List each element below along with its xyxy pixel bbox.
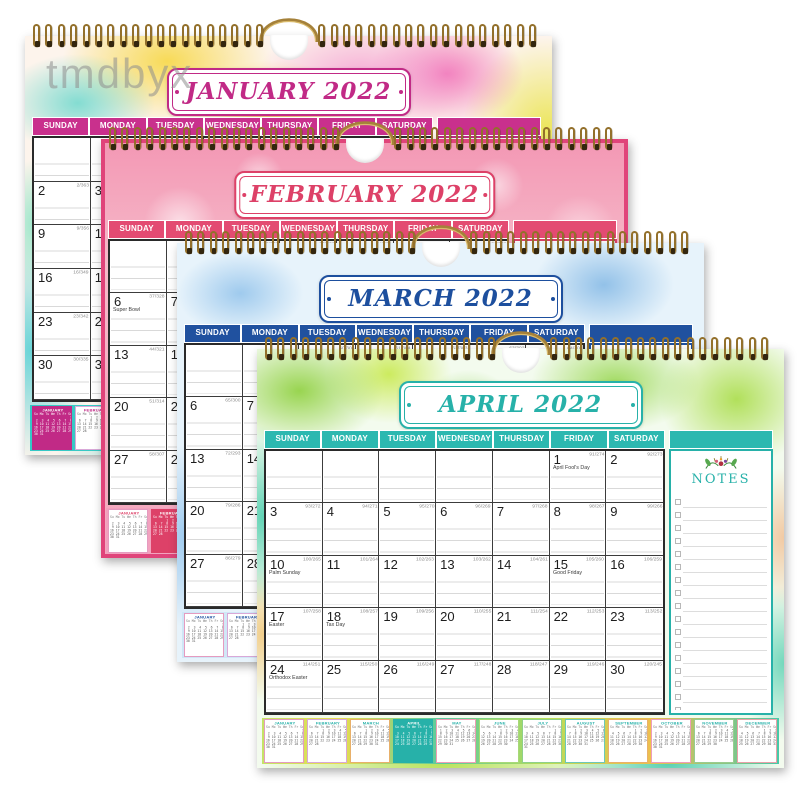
binding-loop xyxy=(619,231,626,254)
binding-loop xyxy=(529,24,536,47)
spiral-binding xyxy=(257,336,784,368)
day-cell: 15105/260Good Friday xyxy=(550,556,607,608)
binding-loop xyxy=(120,24,127,47)
calendar-title: APRIL 2022 xyxy=(415,383,627,427)
binding-loop xyxy=(171,127,178,150)
day-cell: 1372/293 xyxy=(186,450,243,502)
day-cell: 11101/264 xyxy=(323,556,380,608)
binding-loop xyxy=(283,127,290,150)
day-header: TUESDAY xyxy=(380,431,435,448)
mini-calendar-january: JANUARYSu Mo Tu We Th Fr Sa 1 2 3 4 5 6 … xyxy=(108,509,148,553)
binding-loop xyxy=(625,337,632,360)
binding-loop xyxy=(295,127,302,150)
binding-loop xyxy=(439,337,446,360)
day-cell xyxy=(110,241,167,293)
binding-loop xyxy=(517,24,524,47)
mini-calendar-august: AUGUSTSu Mo Tu We Th Fr Sa 1 2 3 4 5 6 7… xyxy=(565,719,605,763)
day-header: MONDAY xyxy=(322,431,377,448)
day-cell: 18108/257Tax Day xyxy=(323,608,380,660)
weekday-header-row: SUNDAYMONDAYTUESDAYWEDNESDAYTHURSDAYFRID… xyxy=(264,430,665,449)
binding-loop xyxy=(95,24,102,47)
day-header: SATURDAY xyxy=(609,431,664,448)
mini-calendar-may: MAYSu Mo Tu We Th Fr Sa 1 2 3 4 5 6 7 8 … xyxy=(436,719,476,763)
binding-loop xyxy=(259,231,266,254)
binding-loop xyxy=(649,337,656,360)
product-image: tmdbyx JANUARY 2022 SUNDAYMONDAYTUESDAYW… xyxy=(0,0,800,800)
binding-loop xyxy=(456,127,463,150)
day-cell: 17107/258Easter xyxy=(266,608,323,660)
binding-loop xyxy=(169,24,176,47)
note-line xyxy=(683,508,767,521)
binding-loop xyxy=(145,24,152,47)
title-plate: JANUARY 2022 xyxy=(167,68,411,116)
binding-loop xyxy=(470,231,477,254)
binding-loop xyxy=(396,231,403,254)
binding-loop xyxy=(504,24,511,47)
day-cell: 22112/253 xyxy=(550,608,607,660)
binding-loop xyxy=(587,337,594,360)
binding-loop xyxy=(442,24,449,47)
binding-loop xyxy=(394,127,401,150)
binding-loop xyxy=(605,127,612,150)
day-cell: 1616/349 xyxy=(34,269,91,313)
note-line xyxy=(683,521,767,534)
binding-loop xyxy=(631,231,638,254)
day-cell: 30120/245 xyxy=(606,661,663,713)
binding-loop xyxy=(327,337,334,360)
binding-loop xyxy=(258,127,265,150)
binding-loop xyxy=(371,231,378,254)
day-cell: 595/270 xyxy=(379,503,436,555)
binding-loop xyxy=(493,127,500,150)
binding-loop xyxy=(444,127,451,150)
day-cell: 3030/335 xyxy=(34,356,91,400)
binding-loop xyxy=(426,337,433,360)
month-grid: 191/274April Fool's Day292/273393/272494… xyxy=(264,449,665,715)
binding-loop xyxy=(352,337,359,360)
binding-loop xyxy=(208,127,215,150)
day-cell: 696/269 xyxy=(436,503,493,555)
binding-loop xyxy=(70,24,77,47)
day-header: SUNDAY xyxy=(265,431,320,448)
binding-loop xyxy=(405,24,412,47)
binding-loop xyxy=(197,231,204,254)
binding-loop xyxy=(593,127,600,150)
day-cell: 898/267 xyxy=(550,503,607,555)
day-cell: 25115/250 xyxy=(323,661,380,713)
binding-loop xyxy=(463,337,470,360)
binding-loop xyxy=(582,231,589,254)
note-line xyxy=(683,495,767,508)
binding-loop xyxy=(245,127,252,150)
binding-loop xyxy=(518,127,525,150)
binding-loop xyxy=(761,337,768,360)
binding-loop xyxy=(483,231,490,254)
mini-calendar-july: JULYSu Mo Tu We Th Fr Sa 1 2 3 4 5 6 7 8… xyxy=(522,719,562,763)
day-cell: 12102/263 xyxy=(379,556,436,608)
binding-loop xyxy=(545,231,552,254)
binding-loop xyxy=(244,24,251,47)
binding-loop xyxy=(532,231,539,254)
binding-loop xyxy=(724,337,731,360)
binding-loop xyxy=(431,127,438,150)
binding-loop xyxy=(419,127,426,150)
binding-loop xyxy=(315,337,322,360)
title-plate: FEBRUARY 2022 xyxy=(234,171,495,219)
note-line xyxy=(683,560,767,573)
binding-loop xyxy=(568,127,575,150)
day-cell: 1344/321 xyxy=(110,346,167,398)
note-line xyxy=(683,638,767,651)
day-cell: 10100/265Palm Sunday xyxy=(266,556,323,608)
binding-loop xyxy=(256,24,263,47)
binding-loop xyxy=(359,231,366,254)
binding-loop xyxy=(265,337,272,360)
day-cell: 99/356 xyxy=(34,225,91,269)
day-cell xyxy=(34,138,91,182)
notes-header-bar xyxy=(669,430,773,449)
note-line xyxy=(683,612,767,625)
day-cell: 13103/262 xyxy=(436,556,493,608)
binding-loop xyxy=(711,337,718,360)
binding-loop xyxy=(644,231,651,254)
calendar-sheet-april: APRIL 2022 SUNDAYMONDAYTUESDAYWEDNESDAYT… xyxy=(257,349,784,768)
binding-loop xyxy=(318,24,325,47)
binding-loop xyxy=(393,24,400,47)
mini-calendar-february: FEBRUARYSu Mo Tu We Th Fr Sa 1 2 3 4 5 6… xyxy=(307,719,347,763)
mini-calendar-april: APRILSu Mo Tu We Th Fr Sa 1 2 3 4 5 6 7 … xyxy=(393,719,433,763)
day-cell: 2758/307 xyxy=(110,451,167,503)
spiral-binding xyxy=(177,230,704,262)
binding-loop xyxy=(194,24,201,47)
mini-calendar-january: JANUARYSu Mo Tu We Th Fr Sa 1 2 3 4 5 6 … xyxy=(184,613,224,657)
binding-loop xyxy=(109,127,116,150)
binding-loop xyxy=(401,337,408,360)
binding-loop xyxy=(321,231,328,254)
binding-loop xyxy=(331,24,338,47)
flower-icon xyxy=(699,454,743,472)
mini-calendar-november: NOVEMBERSu Mo Tu We Th Fr Sa 1 2 3 4 5 6… xyxy=(694,719,734,763)
day-cell xyxy=(379,451,436,503)
binding-loop xyxy=(594,231,601,254)
binding-loop xyxy=(637,337,644,360)
day-cell: 665/300 xyxy=(186,397,243,449)
notes-label: NOTES xyxy=(671,472,771,487)
binding-loop xyxy=(222,231,229,254)
binding-loop xyxy=(290,337,297,360)
mini-calendar-june: JUNESu Mo Tu We Th Fr Sa 1 2 3 4 5 6 7 8… xyxy=(479,719,519,763)
day-cell: 21111/254 xyxy=(493,608,550,660)
day-header: SUNDAY xyxy=(185,325,240,342)
day-cell: 637/328Super Bowl xyxy=(110,293,167,345)
day-header: FRIDAY xyxy=(551,431,606,448)
note-line xyxy=(683,586,767,599)
binding-loop xyxy=(320,127,327,150)
day-cell: 2786/279 xyxy=(186,555,243,607)
binding-loop xyxy=(309,231,316,254)
binding-loop xyxy=(488,337,495,360)
binding-loop xyxy=(469,127,476,150)
binding-loop xyxy=(183,127,190,150)
note-line xyxy=(683,690,767,703)
binding-loop xyxy=(389,337,396,360)
binding-loop xyxy=(550,337,557,360)
binding-loop xyxy=(355,24,362,47)
binding-loop xyxy=(196,127,203,150)
binding-loop xyxy=(146,127,153,150)
binding-loop xyxy=(495,231,502,254)
watermark: tmdbyx xyxy=(46,50,193,98)
mini-calendar-january: JANUARYSu Mo Tu We Th Fr Sa 1 2 3 4 5 6 … xyxy=(264,719,304,763)
day-cell: 23113/252 xyxy=(606,608,663,660)
binding-loop xyxy=(368,24,375,47)
binding-loop xyxy=(492,24,499,47)
day-cell: 797/268 xyxy=(493,503,550,555)
binding-loop xyxy=(343,24,350,47)
day-cell xyxy=(323,451,380,503)
note-line xyxy=(683,664,767,677)
mini-calendar-march: MARCHSu Mo Tu We Th Fr Sa 1 2 3 4 5 6 7 … xyxy=(350,719,390,763)
binding-loop xyxy=(284,231,291,254)
mini-calendar-january: JANUARYSu Mo Tu We Th Fr Sa 1 2 3 4 5 6 … xyxy=(32,406,72,450)
binding-loop xyxy=(247,231,254,254)
day-cell: 14104/261 xyxy=(493,556,550,608)
binding-loop xyxy=(476,337,483,360)
mini-calendar-october: OCTOBERSu Mo Tu We Th Fr Sa 1 2 3 4 5 6 … xyxy=(651,719,691,763)
day-cell: 24114/251Orthodox Easter xyxy=(266,661,323,713)
notes-lines xyxy=(675,495,767,710)
day-cell: 494/271 xyxy=(323,503,380,555)
calendar-title: MARCH 2022 xyxy=(335,277,547,321)
binding-loop xyxy=(580,127,587,150)
binding-loop xyxy=(380,24,387,47)
title-plate: MARCH 2022 xyxy=(319,275,563,323)
note-line xyxy=(683,703,767,710)
day-cell: 393/272 xyxy=(266,503,323,555)
binding-loop xyxy=(736,337,743,360)
binding-loop xyxy=(334,231,341,254)
binding-loop xyxy=(467,24,474,47)
day-cell xyxy=(186,345,243,397)
calendar-title: FEBRUARY 2022 xyxy=(250,173,479,217)
binding-loop xyxy=(132,24,139,47)
binding-loop xyxy=(531,127,538,150)
note-line xyxy=(683,599,767,612)
binding-loop xyxy=(207,24,214,47)
note-line xyxy=(683,573,767,586)
binding-loop xyxy=(481,127,488,150)
binding-loop xyxy=(674,337,681,360)
day-header: SUNDAY xyxy=(33,118,88,135)
mini-calendar-september: SEPTEMBERSu Mo Tu We Th Fr Sa 1 2 3 4 5 … xyxy=(608,719,648,763)
day-cell xyxy=(266,451,323,503)
day-header: THURSDAY xyxy=(494,431,549,448)
binding-loop xyxy=(575,337,582,360)
binding-loop xyxy=(45,24,52,47)
binding-loop xyxy=(600,337,607,360)
day-cell: 29119/246 xyxy=(550,661,607,713)
binding-loop xyxy=(270,127,277,150)
binding-loop xyxy=(417,24,424,47)
day-cell: 26116/249 xyxy=(379,661,436,713)
binding-loop xyxy=(656,231,663,254)
binding-loop xyxy=(221,127,228,150)
binding-loop xyxy=(302,337,309,360)
binding-loop xyxy=(569,231,576,254)
binding-loop xyxy=(159,127,166,150)
day-cell: 2051/314 xyxy=(110,398,167,450)
day-cell: 2323/342 xyxy=(34,313,91,357)
binding-loop xyxy=(669,231,676,254)
binding-loop xyxy=(607,231,614,254)
binding-loop xyxy=(687,337,694,360)
binding-loop xyxy=(749,337,756,360)
binding-loop xyxy=(210,231,217,254)
day-cell: 16106/259 xyxy=(606,556,663,608)
binding-loop xyxy=(681,231,688,254)
day-cell: 20110/255 xyxy=(436,608,493,660)
notes-panel: NOTES xyxy=(669,449,773,715)
binding-loop xyxy=(231,24,238,47)
note-line xyxy=(683,547,767,560)
binding-loop xyxy=(506,127,513,150)
binding-loop xyxy=(479,24,486,47)
binding-loop xyxy=(699,337,706,360)
binding-loop xyxy=(134,127,141,150)
binding-loop xyxy=(272,231,279,254)
note-line xyxy=(683,534,767,547)
day-cell: 191/274April Fool's Day xyxy=(550,451,607,503)
note-line xyxy=(683,625,767,638)
day-cell: 2079/286 xyxy=(186,502,243,554)
binding-loop xyxy=(339,337,346,360)
binding-loop xyxy=(408,231,415,254)
mini-calendar-december: DECEMBERSu Mo Tu We Th Fr Sa 1 2 3 4 5 6… xyxy=(737,719,777,763)
binding-loop xyxy=(121,127,128,150)
binding-loop xyxy=(307,127,314,150)
binding-loop xyxy=(612,337,619,360)
day-cell: 19109/256 xyxy=(379,608,436,660)
day-header: SUNDAY xyxy=(109,221,164,238)
note-line xyxy=(683,677,767,690)
binding-loop xyxy=(543,127,550,150)
binding-loop xyxy=(235,231,242,254)
title-plate: APRIL 2022 xyxy=(399,381,643,429)
binding-loop xyxy=(233,127,240,150)
binding-loop xyxy=(414,337,421,360)
binding-loop xyxy=(507,231,514,254)
day-cell: 292/273 xyxy=(606,451,663,503)
binding-loop xyxy=(407,127,414,150)
binding-loop xyxy=(219,24,226,47)
binding-loop xyxy=(107,24,114,47)
calendar-title: JANUARY 2022 xyxy=(183,70,395,114)
binding-loop xyxy=(563,337,570,360)
binding-loop xyxy=(455,24,462,47)
binding-loop xyxy=(297,231,304,254)
binding-loop xyxy=(430,24,437,47)
binding-loop xyxy=(346,231,353,254)
day-cell: 27117/248 xyxy=(436,661,493,713)
day-cell: 22/363 xyxy=(34,182,91,226)
day-cell: 28118/247 xyxy=(493,661,550,713)
spiral-binding xyxy=(101,126,628,158)
day-cell xyxy=(493,451,550,503)
day-header: WEDNESDAY xyxy=(437,431,492,448)
binding-loop xyxy=(58,24,65,47)
binding-loop xyxy=(185,231,192,254)
binding-loop xyxy=(377,337,384,360)
binding-loop xyxy=(557,231,564,254)
binding-loop xyxy=(83,24,90,47)
binding-loop xyxy=(451,337,458,360)
binding-loop xyxy=(277,337,284,360)
binding-loop xyxy=(364,337,371,360)
day-cell: 999/266 xyxy=(606,503,663,555)
note-line xyxy=(683,651,767,664)
binding-loop xyxy=(383,231,390,254)
binding-loop xyxy=(662,337,669,360)
mini-month-strip: JANUARYSu Mo Tu We Th Fr Sa 1 2 3 4 5 6 … xyxy=(262,718,779,764)
binding-loop xyxy=(555,127,562,150)
binding-loop xyxy=(157,24,164,47)
binding-loop xyxy=(520,231,527,254)
binding-loop xyxy=(332,127,339,150)
binding-loop xyxy=(182,24,189,47)
binding-loop xyxy=(33,24,40,47)
day-cell xyxy=(436,451,493,503)
